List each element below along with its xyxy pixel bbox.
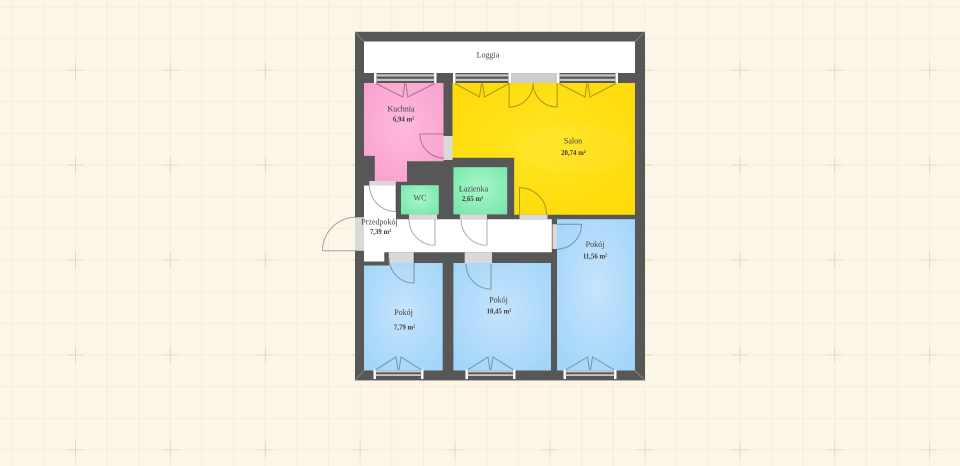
svg-text:Pokój: Pokój [394, 308, 413, 317]
svg-text:Pokój: Pokój [586, 240, 605, 249]
svg-text:11,56 m²: 11,56 m² [583, 254, 607, 261]
svg-text:10,45 m²: 10,45 m² [487, 308, 512, 315]
svg-text:6,94 m²: 6,94 m² [393, 117, 414, 124]
svg-text:Loggia: Loggia [477, 51, 500, 60]
svg-text:Pokój: Pokój [489, 296, 508, 305]
svg-text:7,79 m²: 7,79 m² [394, 324, 415, 331]
svg-text:Przedpokój: Przedpokój [361, 218, 397, 227]
svg-text:7,39 m²: 7,39 m² [370, 229, 391, 236]
svg-text:2,65 m²: 2,65 m² [462, 196, 483, 203]
svg-text:20,74 m²: 20,74 m² [561, 150, 586, 157]
svg-text:Łazienka: Łazienka [459, 184, 489, 193]
svg-text:Kuchnia: Kuchnia [387, 105, 415, 114]
svg-text:Salon: Salon [564, 137, 582, 146]
svg-text:WC: WC [414, 194, 427, 203]
